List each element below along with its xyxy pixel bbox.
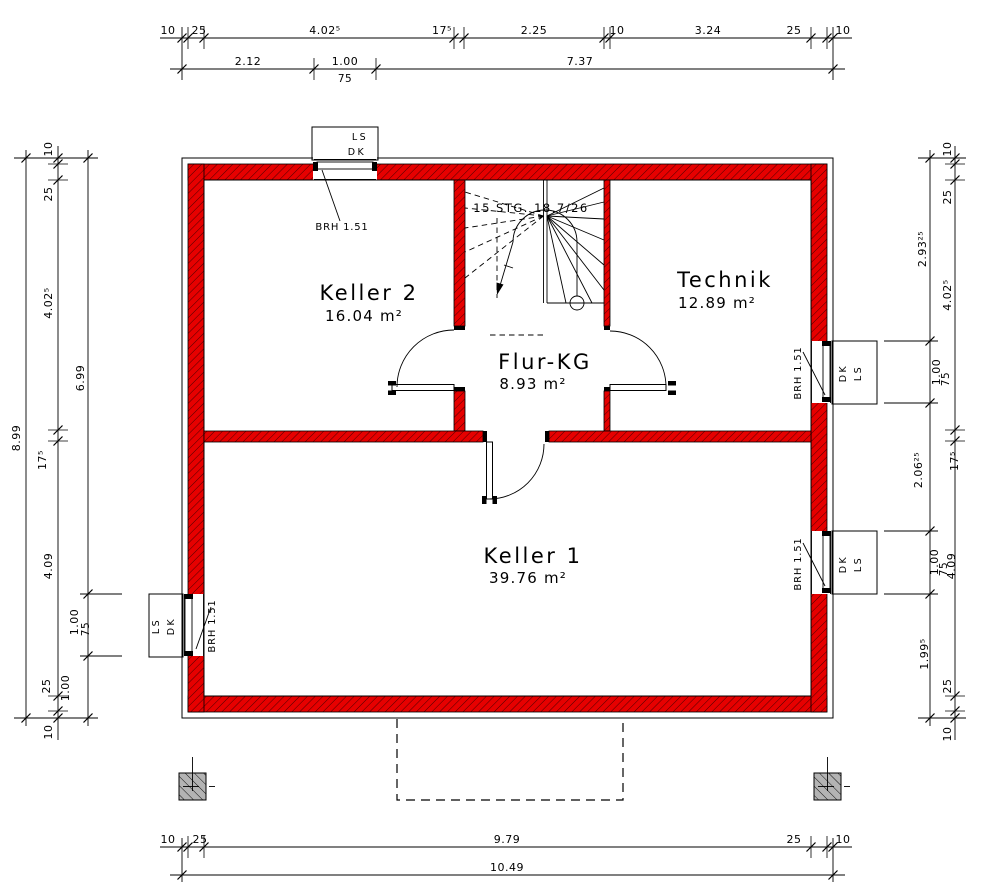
room-name-keller1: Keller 1	[484, 544, 583, 568]
dimension-top: 10 25 4.02⁵ 17⁵ 2.25 10 3.24 25 10 2.12 …	[160, 24, 852, 85]
dim-label: 4.02⁵	[941, 279, 954, 310]
door-technik	[610, 331, 676, 395]
dim-label: 10	[161, 833, 176, 846]
dimension-bottom: 10 25 9.79 25 10 10.49	[160, 833, 852, 882]
dim-label: 2.93²⁵	[916, 231, 929, 267]
vent-label-dk: DK	[838, 555, 849, 574]
dim-label: 2.06²⁵	[912, 452, 925, 488]
vent-label-dk: DK	[348, 147, 367, 158]
dim-label: 17⁵	[432, 24, 452, 37]
stair-label: 15 STG. 18,7/26	[473, 201, 588, 215]
dim-label: 10	[941, 727, 954, 742]
window-left-keller1: LS DK BRH 1.51	[149, 594, 218, 657]
dim-label: 10	[42, 725, 55, 740]
floor-plan-sheet: 15 STG. 18,7/26 LS DK BRH 1.51	[0, 0, 1000, 893]
room-area-keller1: 39.76 m²	[489, 569, 567, 587]
dim-label: 7.37	[567, 55, 594, 68]
door-keller2	[388, 330, 454, 395]
floor-plan-drawing: 15 STG. 18,7/26 LS DK BRH 1.51	[0, 0, 1000, 893]
walk-line-arrow	[497, 283, 504, 296]
dim-label: 10	[610, 24, 625, 37]
dim-label: 2.12	[235, 55, 262, 68]
dim-label: 10	[941, 142, 954, 157]
vent-label-ls: LS	[853, 556, 864, 572]
door-swing-arc	[610, 331, 666, 387]
room-area-technik: 12.89 m²	[678, 294, 756, 312]
dim-label: 25	[787, 833, 802, 846]
dim-label: 25	[42, 187, 55, 202]
door-leaf	[487, 442, 493, 499]
stair-walk-line	[497, 210, 585, 310]
dim-label: 10	[161, 24, 176, 37]
wall-mid-left	[204, 431, 483, 442]
sill-height-label: BRH 1.51	[793, 537, 804, 590]
door-swing-arc	[397, 330, 454, 387]
window-right-technik: DK LS BRH 1.51	[793, 341, 877, 404]
dim-label: 4.02⁵	[309, 24, 340, 37]
room-name-technik: Technik	[676, 268, 773, 292]
wall-flur-technik-upper	[604, 180, 610, 326]
vent-label-dk: DK	[838, 364, 849, 383]
dim-label: 1.00	[59, 675, 72, 702]
dim-label: 17⁵	[948, 451, 961, 471]
dim-label: 2.25	[521, 24, 548, 37]
vent-label-dk: DK	[166, 617, 177, 636]
vent-label-ls: LS	[352, 132, 368, 143]
sill-height-label: BRH 1.51	[207, 599, 218, 652]
vent-label-ls: LS	[151, 618, 162, 634]
wall-keller2-flur-upper	[454, 180, 465, 326]
dim-label: 10	[42, 142, 55, 157]
dim-label: 4.09	[42, 553, 55, 580]
dim-label: 25	[941, 190, 954, 205]
door-keller1	[482, 442, 544, 504]
dimension-right: 2.93²⁵ 1.00 75 2.06²⁵ 1.00 75 1.99⁵ 10 2…	[884, 142, 966, 742]
column-footing-right	[814, 757, 850, 800]
room-area-keller2: 16.04 m²	[325, 307, 403, 325]
vent-label-ls: LS	[853, 365, 864, 381]
dim-label: 4.09	[945, 553, 958, 580]
room-labels: Keller 2 16.04 m² Technik 12.89 m² Flur-…	[320, 268, 773, 587]
dim-sublabel: 75	[940, 372, 952, 386]
dim-label: 25	[941, 679, 954, 694]
dim-label: 8.99	[10, 425, 23, 452]
door-leaf	[610, 385, 666, 391]
dim-label: 25	[192, 24, 207, 37]
wall-flur-technik-lower	[604, 391, 610, 431]
door-swing-arc	[489, 444, 544, 499]
room-name-keller2: Keller 2	[320, 281, 419, 305]
dim-label: 25	[787, 24, 802, 37]
sill-height-label: BRH 1.51	[315, 222, 368, 233]
door-leaf	[392, 385, 454, 391]
entrance-stair-outline-dashed	[397, 719, 623, 800]
dim-label: 1.99⁵	[918, 638, 931, 669]
dim-label: 17⁵	[36, 450, 49, 470]
dim-label: 3.24	[695, 24, 722, 37]
room-area-flur: 8.93 m²	[499, 375, 566, 393]
dim-sublabel: 75	[80, 622, 92, 636]
dim-label: 1.00	[332, 55, 359, 68]
window-right-keller1: DK LS BRH 1.51	[793, 531, 877, 594]
dim-label: 25	[193, 833, 208, 846]
wall-mid-right	[549, 431, 811, 442]
wall-keller2-flur-lower	[454, 391, 465, 431]
dim-label: 10	[836, 833, 851, 846]
room-name-flur: Flur-KG	[498, 350, 592, 374]
dim-label: 6.99	[74, 365, 87, 392]
dim-label: 10.49	[490, 861, 524, 874]
column-footing-left	[179, 757, 215, 800]
dim-label: 25	[40, 679, 53, 694]
dim-sublabel: 75	[338, 73, 352, 85]
dim-label: 9.79	[494, 833, 521, 846]
dim-label: 10	[836, 24, 851, 37]
sill-height-label: BRH 1.51	[793, 346, 804, 399]
dimension-left: 8.99 10 25 4.02⁵ 17⁵ 4.09 25 10 6.99 1.0…	[10, 142, 122, 741]
staircase: 15 STG. 18,7/26	[465, 180, 604, 335]
dim-label: 4.02⁵	[42, 287, 55, 318]
